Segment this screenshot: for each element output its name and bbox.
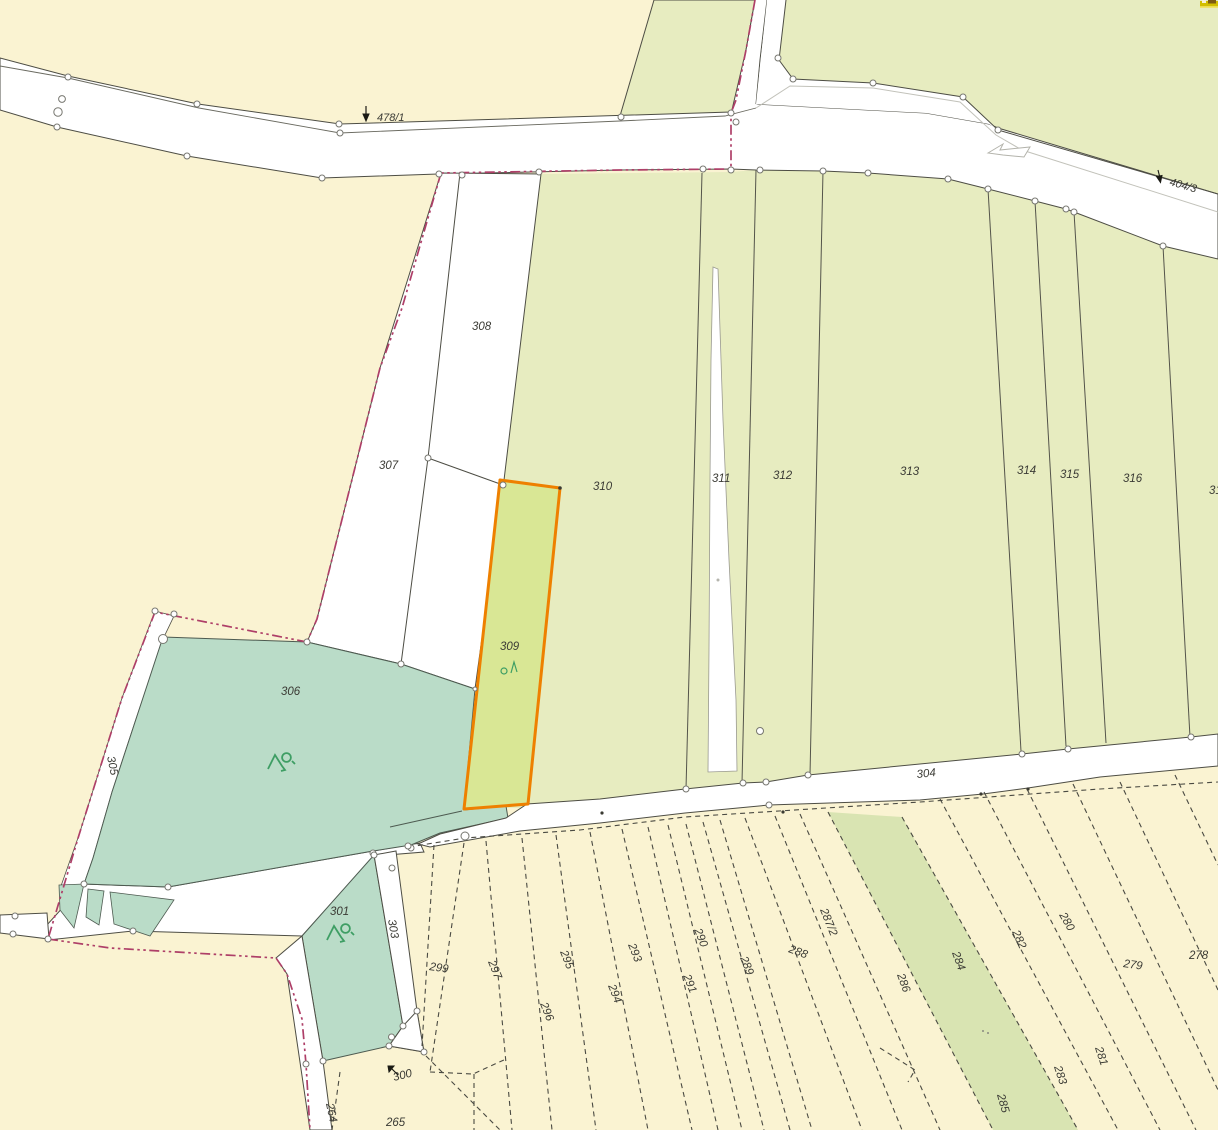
svg-text:309: 309 xyxy=(500,641,520,653)
svg-text:304: 304 xyxy=(916,767,936,781)
svg-text:478/1: 478/1 xyxy=(377,112,405,124)
svg-text:301: 301 xyxy=(330,906,349,918)
svg-text:315: 315 xyxy=(1060,469,1080,481)
svg-text:311: 311 xyxy=(712,473,730,485)
svg-text:265: 265 xyxy=(385,1117,406,1129)
svg-text:316: 316 xyxy=(1123,473,1143,485)
svg-text:307: 307 xyxy=(379,460,399,472)
svg-text:313: 313 xyxy=(900,466,920,478)
svg-text:308: 308 xyxy=(472,321,492,333)
svg-text:310: 310 xyxy=(593,481,613,493)
svg-text:314: 314 xyxy=(1017,465,1036,477)
svg-text:312: 312 xyxy=(773,470,793,482)
svg-text:306: 306 xyxy=(281,686,301,698)
svg-text:278: 278 xyxy=(1188,950,1209,962)
svg-text:31: 31 xyxy=(1209,485,1218,497)
